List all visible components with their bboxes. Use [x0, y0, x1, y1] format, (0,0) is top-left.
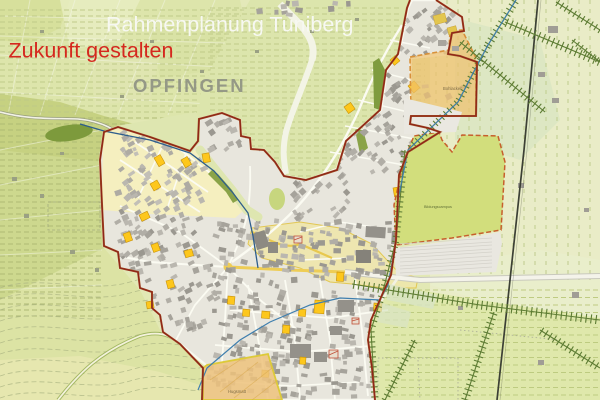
- svg-text:Zukunft gestalten: Zukunft gestalten: [9, 39, 174, 63]
- svg-text:OPFINGEN: OPFINGEN: [133, 75, 246, 96]
- svg-text:Bohlacker: Bohlacker: [443, 86, 462, 91]
- svg-text:Rahmenplanung Tuniberg: Rahmenplanung Tuniberg: [106, 13, 353, 37]
- svg-text:Hugsmatt: Hugsmatt: [228, 389, 247, 394]
- svg-text:Bildungscampus: Bildungscampus: [424, 205, 452, 209]
